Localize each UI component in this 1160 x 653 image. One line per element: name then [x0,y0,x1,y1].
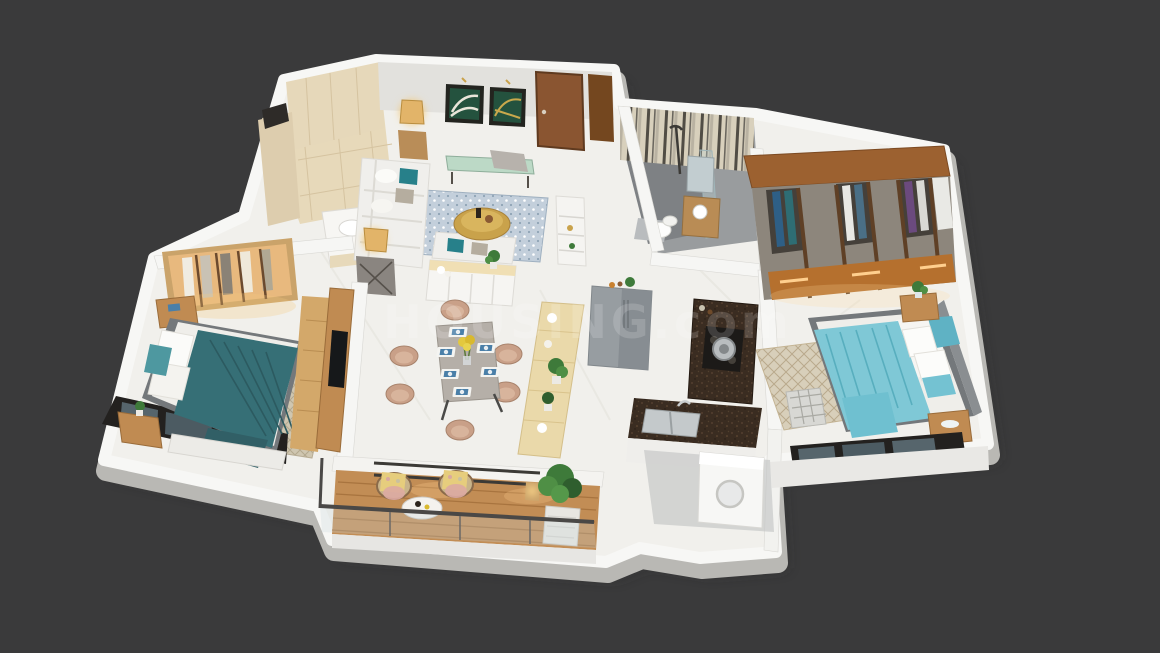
coffee-cup [415,501,421,507]
shelf-plant [569,243,575,249]
lamp-side-table [398,130,428,160]
dining-chair [390,346,418,366]
lantern-glow [527,486,537,496]
placemat [452,387,471,397]
decor-sphere [445,271,451,277]
rattan-chair [377,472,411,500]
table-decor [425,505,430,510]
display-unit [556,196,586,266]
table-bottle [476,208,481,218]
railing-side-post [320,458,322,508]
decor-pebble [537,423,547,433]
dining-chair [446,420,474,440]
door-side-panel [588,74,614,142]
rattan-chair [439,470,473,498]
washer-door [717,481,743,507]
vanity-mirror [687,156,714,193]
vanity-basin [693,205,707,219]
grey-pillow [471,242,488,256]
teal-pillow [399,168,418,185]
table-bowl [485,215,493,223]
door-handle-icon [542,110,546,114]
table-lamp [364,228,388,252]
dining-chair [386,384,414,404]
shelf-decor [567,225,573,231]
toilet-tank [663,216,677,226]
blue-book [168,303,181,311]
white-pillow [371,199,393,213]
utility [644,450,774,532]
dressing-room [744,146,956,308]
duvet-drape [842,392,898,438]
table-lamp [400,100,424,124]
teal-pillow [447,238,464,253]
grey-pillow [395,188,414,204]
floor-plan-render: HOUSING.com [0,0,1160,653]
placemat [480,367,499,377]
coffee-table-top [461,210,503,232]
decor-sphere [437,266,445,274]
watermark-text: HOUSING.com [383,295,793,349]
aqua-pillow [922,374,956,398]
nightstand-tray [941,420,959,428]
balcony [320,458,600,564]
white-pillow [375,169,397,183]
placemat [440,369,459,379]
floor-plan-svg: HOUSING.com [0,0,1160,653]
nightstand [118,412,162,448]
